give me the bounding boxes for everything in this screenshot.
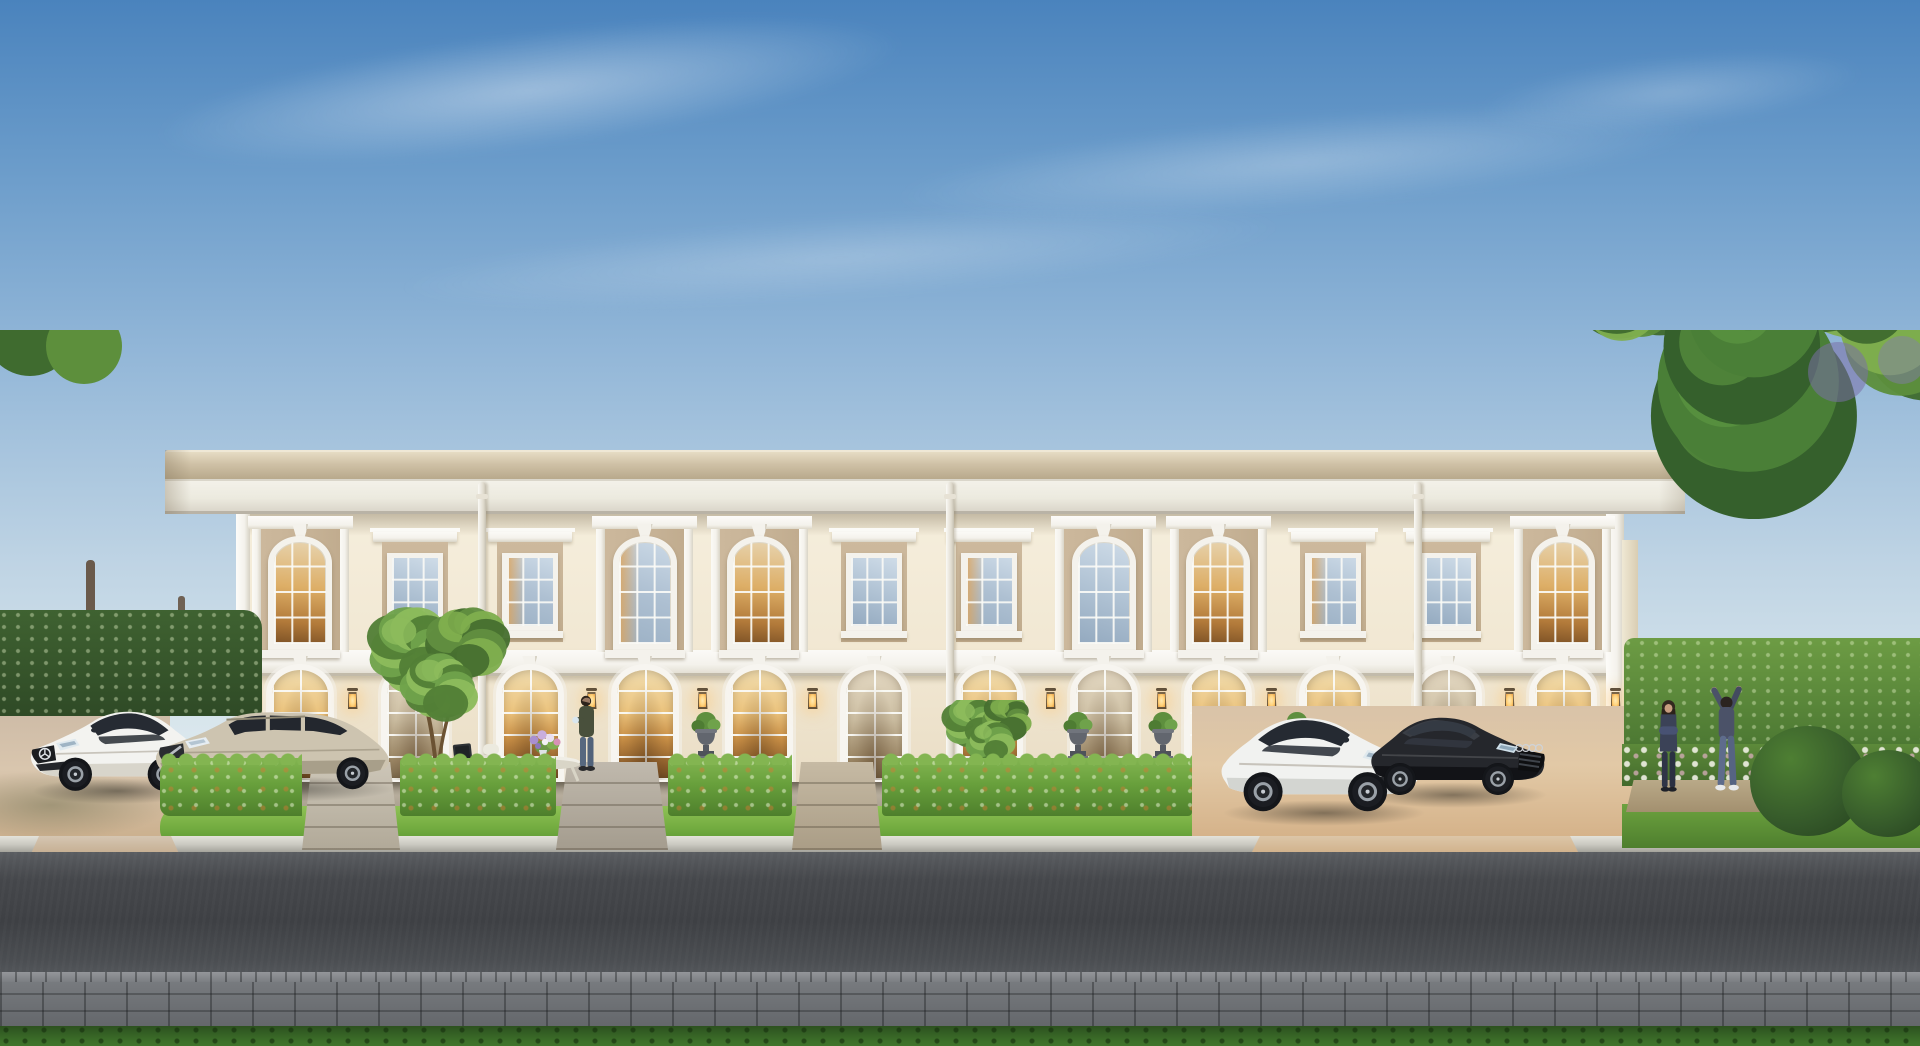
front-hedge-segment-3 <box>882 758 1192 816</box>
rendering-canvas <box>0 0 1920 1046</box>
hedge-top-tufts <box>882 747 1192 765</box>
foreground-grass <box>0 1026 1920 1046</box>
woman-arms-crossed-svg <box>1652 698 1685 792</box>
man-holding-coffee-svg <box>572 694 602 772</box>
audi-a8-black <box>1350 704 1550 804</box>
hedge-top-tufts <box>160 747 302 765</box>
front-hedge-segment-1 <box>400 758 556 816</box>
front-hedge-segment-0 <box>160 758 302 816</box>
man-stretching-svg <box>1702 686 1751 792</box>
audi-a8-black-svg <box>1350 704 1550 804</box>
sidewalk-soldier-course <box>0 972 1920 982</box>
cobblestone-sidewalk <box>0 978 1920 1026</box>
asphalt-road <box>0 852 1920 978</box>
asphalt-sheen <box>0 852 1920 978</box>
hedge-top-tufts <box>400 747 556 765</box>
front-hedge-segment-2 <box>668 758 792 816</box>
hedge-top-tufts <box>668 747 792 765</box>
man-holding-coffee <box>572 694 602 772</box>
garden-walkway-2 <box>792 762 882 850</box>
woman-arms-crossed <box>1652 698 1685 792</box>
man-stretching <box>1702 686 1751 792</box>
